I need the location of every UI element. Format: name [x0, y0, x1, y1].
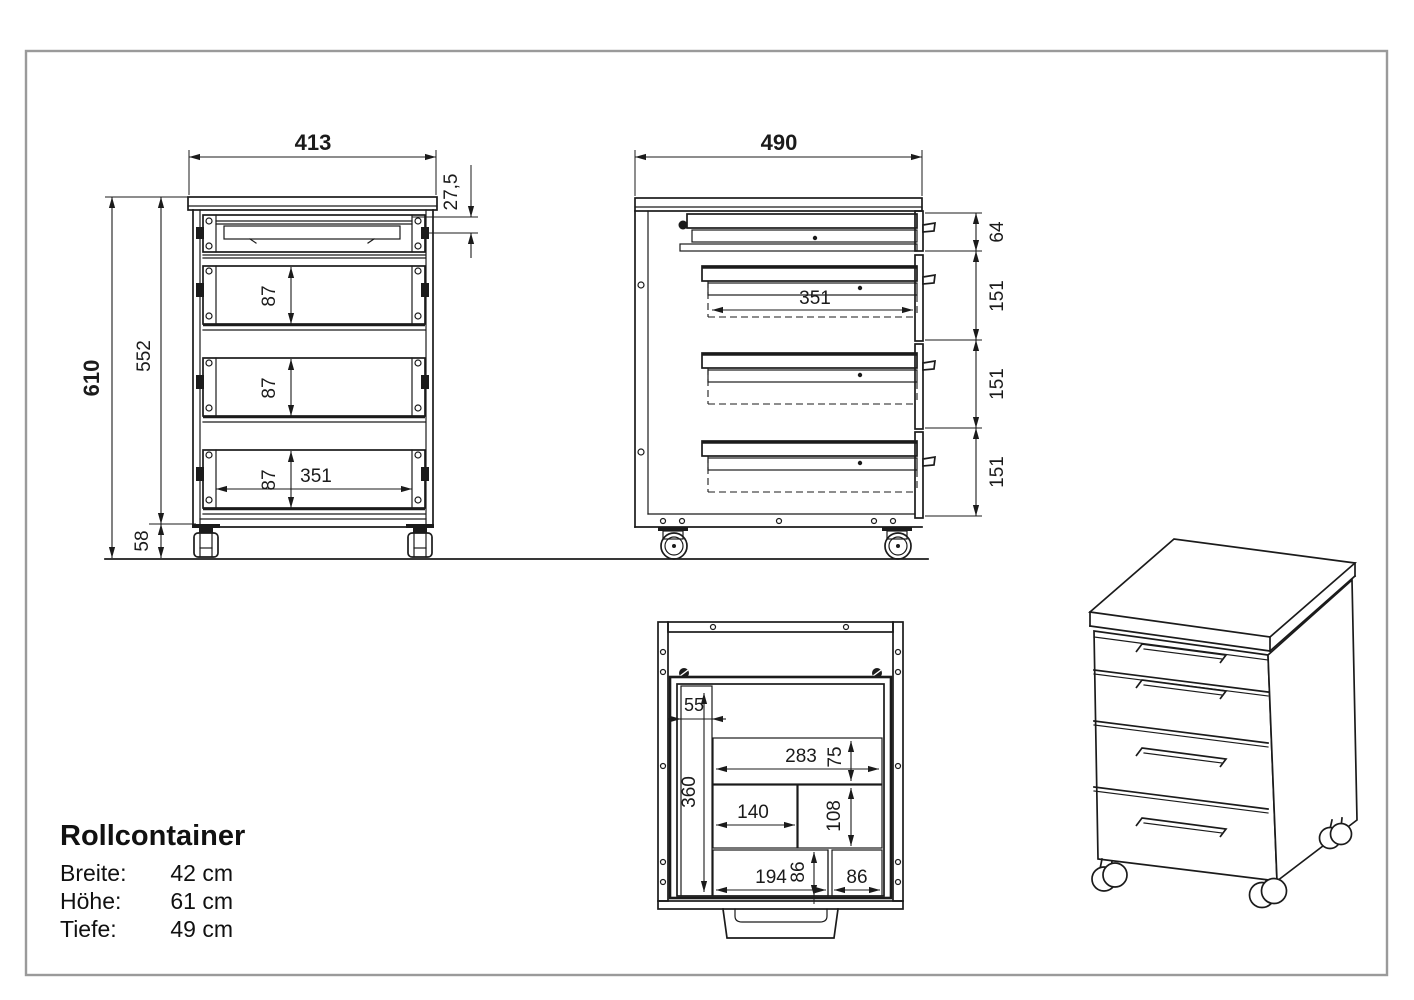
- dim-front-caster-height: 58: [132, 530, 153, 551]
- dim-comp3-depth: 108: [824, 800, 845, 832]
- dim-front-width: 413: [295, 130, 332, 155]
- dim-front-drawer3-height: 87: [259, 377, 280, 398]
- spec-value-depth: 49 cm: [170, 916, 233, 942]
- side-handle-2: [923, 275, 935, 284]
- dim-side-front2: 151: [987, 280, 1008, 312]
- dim-front-inner-width: 351: [300, 466, 332, 487]
- dim-front-drawer4-height: 87: [259, 469, 280, 490]
- dim-comp1-width: 283: [785, 746, 817, 767]
- dim-comp2-width: 140: [737, 802, 769, 823]
- drawing-sheet: 413 610 552 58 27,5 87 87 87 351: [0, 0, 1414, 1000]
- dim-comp4-width: 194: [755, 867, 787, 888]
- side-handle-4: [923, 457, 935, 466]
- spec-label-depth: Tiefe:: [60, 915, 164, 943]
- dim-slot-width: 55: [684, 695, 704, 715]
- dim-front-drawer2-height: 87: [259, 285, 280, 306]
- side-handle-3: [923, 361, 935, 370]
- dim-front-total-height: 610: [79, 360, 104, 397]
- spec-value-width: 42 cm: [170, 860, 233, 886]
- dim-slot-depth: 360: [679, 776, 700, 808]
- dim-comp1-depth: 75: [825, 746, 846, 767]
- dim-front-body-height: 552: [134, 340, 155, 372]
- spec-row-width: Breite: 42 cm: [60, 859, 245, 887]
- title-block: Rollcontainer Breite: 42 cm Höhe: 61 cm …: [60, 820, 245, 943]
- spec-label-height: Höhe:: [60, 887, 164, 915]
- dim-side-front4: 151: [987, 456, 1008, 488]
- dim-front-tray-offset: 27,5: [441, 174, 462, 211]
- spec-value-height: 61 cm: [170, 888, 233, 914]
- spec-row-depth: Tiefe: 49 cm: [60, 915, 245, 943]
- spec-row-height: Höhe: 61 cm: [60, 887, 245, 915]
- dim-side-front3: 151: [987, 368, 1008, 400]
- side-handle-1: [923, 223, 935, 232]
- drawing-title: Rollcontainer: [60, 820, 245, 853]
- dim-comp4-height: 86: [788, 861, 809, 882]
- dim-side-depth: 490: [761, 130, 798, 155]
- spec-label-width: Breite:: [60, 859, 164, 887]
- dim-comp5-width: 86: [846, 867, 867, 888]
- dim-side-front1: 64: [987, 221, 1008, 243]
- dim-side-drawer-depth: 351: [799, 288, 831, 309]
